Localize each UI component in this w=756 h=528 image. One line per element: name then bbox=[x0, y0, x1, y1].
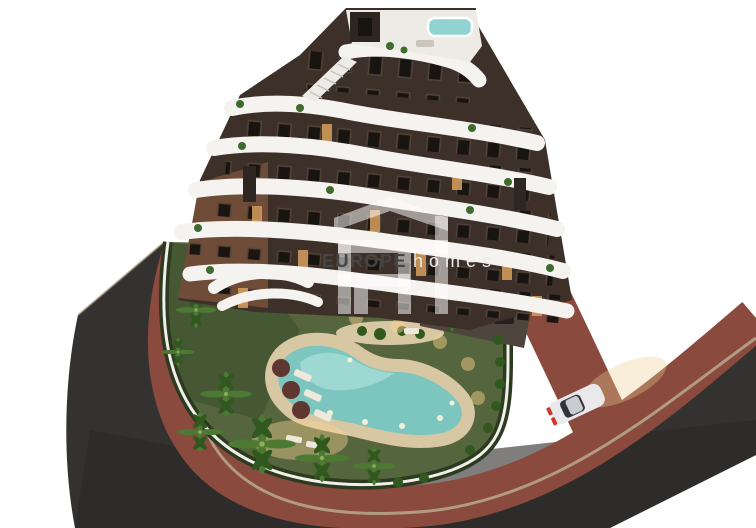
watermark-brand-light: homes bbox=[413, 251, 497, 271]
chimney bbox=[514, 178, 526, 210]
rooftop-pool bbox=[428, 18, 472, 36]
chimney bbox=[243, 166, 256, 202]
scene: EUROPEhomes bbox=[0, 0, 756, 528]
roof-stair-house-door bbox=[358, 18, 372, 36]
watermark-brand-bold: EUROPE bbox=[322, 251, 407, 271]
render-canvas: EUROPEhomes bbox=[0, 0, 756, 528]
roof-furniture bbox=[416, 40, 434, 47]
